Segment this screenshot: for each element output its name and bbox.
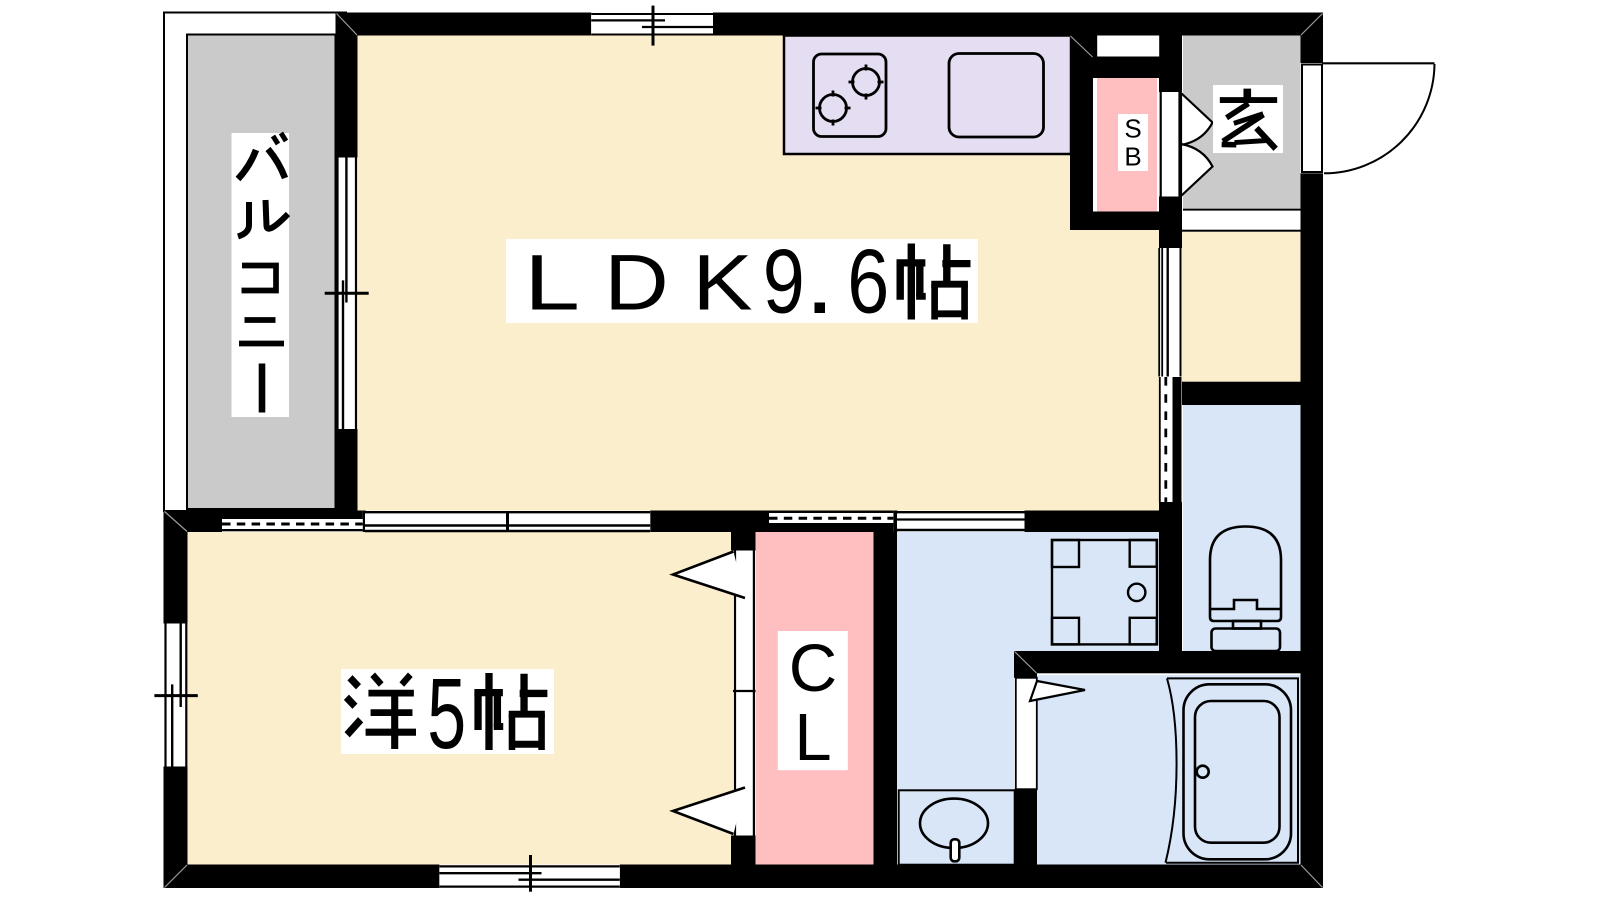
svg-text:D: D (604, 238, 668, 326)
svg-text:K: K (692, 237, 752, 326)
svg-text:C: C (789, 631, 837, 706)
svg-text:9: 9 (763, 230, 805, 332)
svg-text:B: B (1124, 142, 1141, 172)
svg-text:L: L (794, 700, 831, 775)
svg-text:S: S (1124, 114, 1141, 144)
svg-text:6: 6 (847, 230, 889, 332)
svg-text:L: L (524, 238, 580, 326)
svg-text:5: 5 (427, 659, 466, 770)
